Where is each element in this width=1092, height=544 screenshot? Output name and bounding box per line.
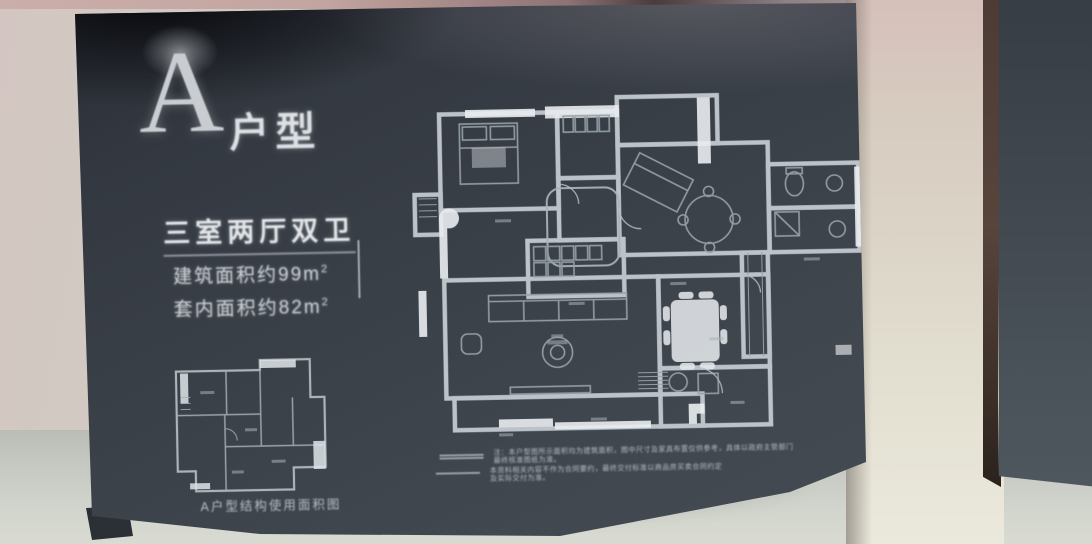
dining-table — [662, 291, 727, 370]
bed-angled — [623, 153, 693, 212]
corridor-lines — [748, 252, 764, 356]
layout-title: 三室两厅双卫 — [163, 208, 356, 257]
unit-type-letter: A — [137, 33, 226, 153]
small-floor-plan — [160, 349, 341, 502]
unit-type-label: 户型 — [229, 99, 322, 159]
small-plan-caption: A户型结构使用面积图 — [200, 494, 341, 516]
disclaimer-text: 注：本户型图所示面积均为建筑面积，图中尺寸及家具布置仅供参考，具体以政府主管部门… — [493, 444, 793, 466]
round-table — [677, 186, 740, 253]
legend-line-mark — [440, 454, 484, 457]
kitchen-counter — [534, 245, 603, 276]
divider-line — [357, 240, 360, 298]
interior-area-text: 套内面积约82m — [174, 297, 322, 321]
disclaimer-text: 本资料相关内容不作为合同要约，最终交付标准以商品房买卖合同约定及实际交付为准。 — [490, 463, 725, 484]
interior-area-line: 套内面积约82m2 — [173, 292, 330, 322]
building-area-line: 建筑面积约99m2 — [173, 259, 330, 289]
building-area-text: 建筑面积约99m — [173, 264, 321, 288]
disclaimer-row: 注：本户型图所示面积均为建筑面积，图中尺寸及家具布置仅供参考，具体以政府主管部门… — [439, 444, 793, 467]
disclaimer-row: 本资料相关内容不作为合同要约，最终交付标准以商品房买卖合同约定及实际交付为准。 — [436, 463, 725, 485]
tv-cabinet — [510, 386, 590, 395]
building-area-sup: 2 — [321, 263, 329, 275]
showroom-photo: A 户型 三室两厅双卫 建筑面积约99m2 套内面积约82m2 — [0, 0, 1092, 544]
second-board-edge — [983, 0, 1001, 502]
main-floor-plan — [405, 82, 872, 443]
interior-area-sup: 2 — [321, 296, 329, 308]
second-display-board — [999, 0, 1092, 512]
side-chair — [461, 334, 481, 354]
walls — [413, 93, 863, 431]
legend-line-mark — [436, 472, 480, 475]
